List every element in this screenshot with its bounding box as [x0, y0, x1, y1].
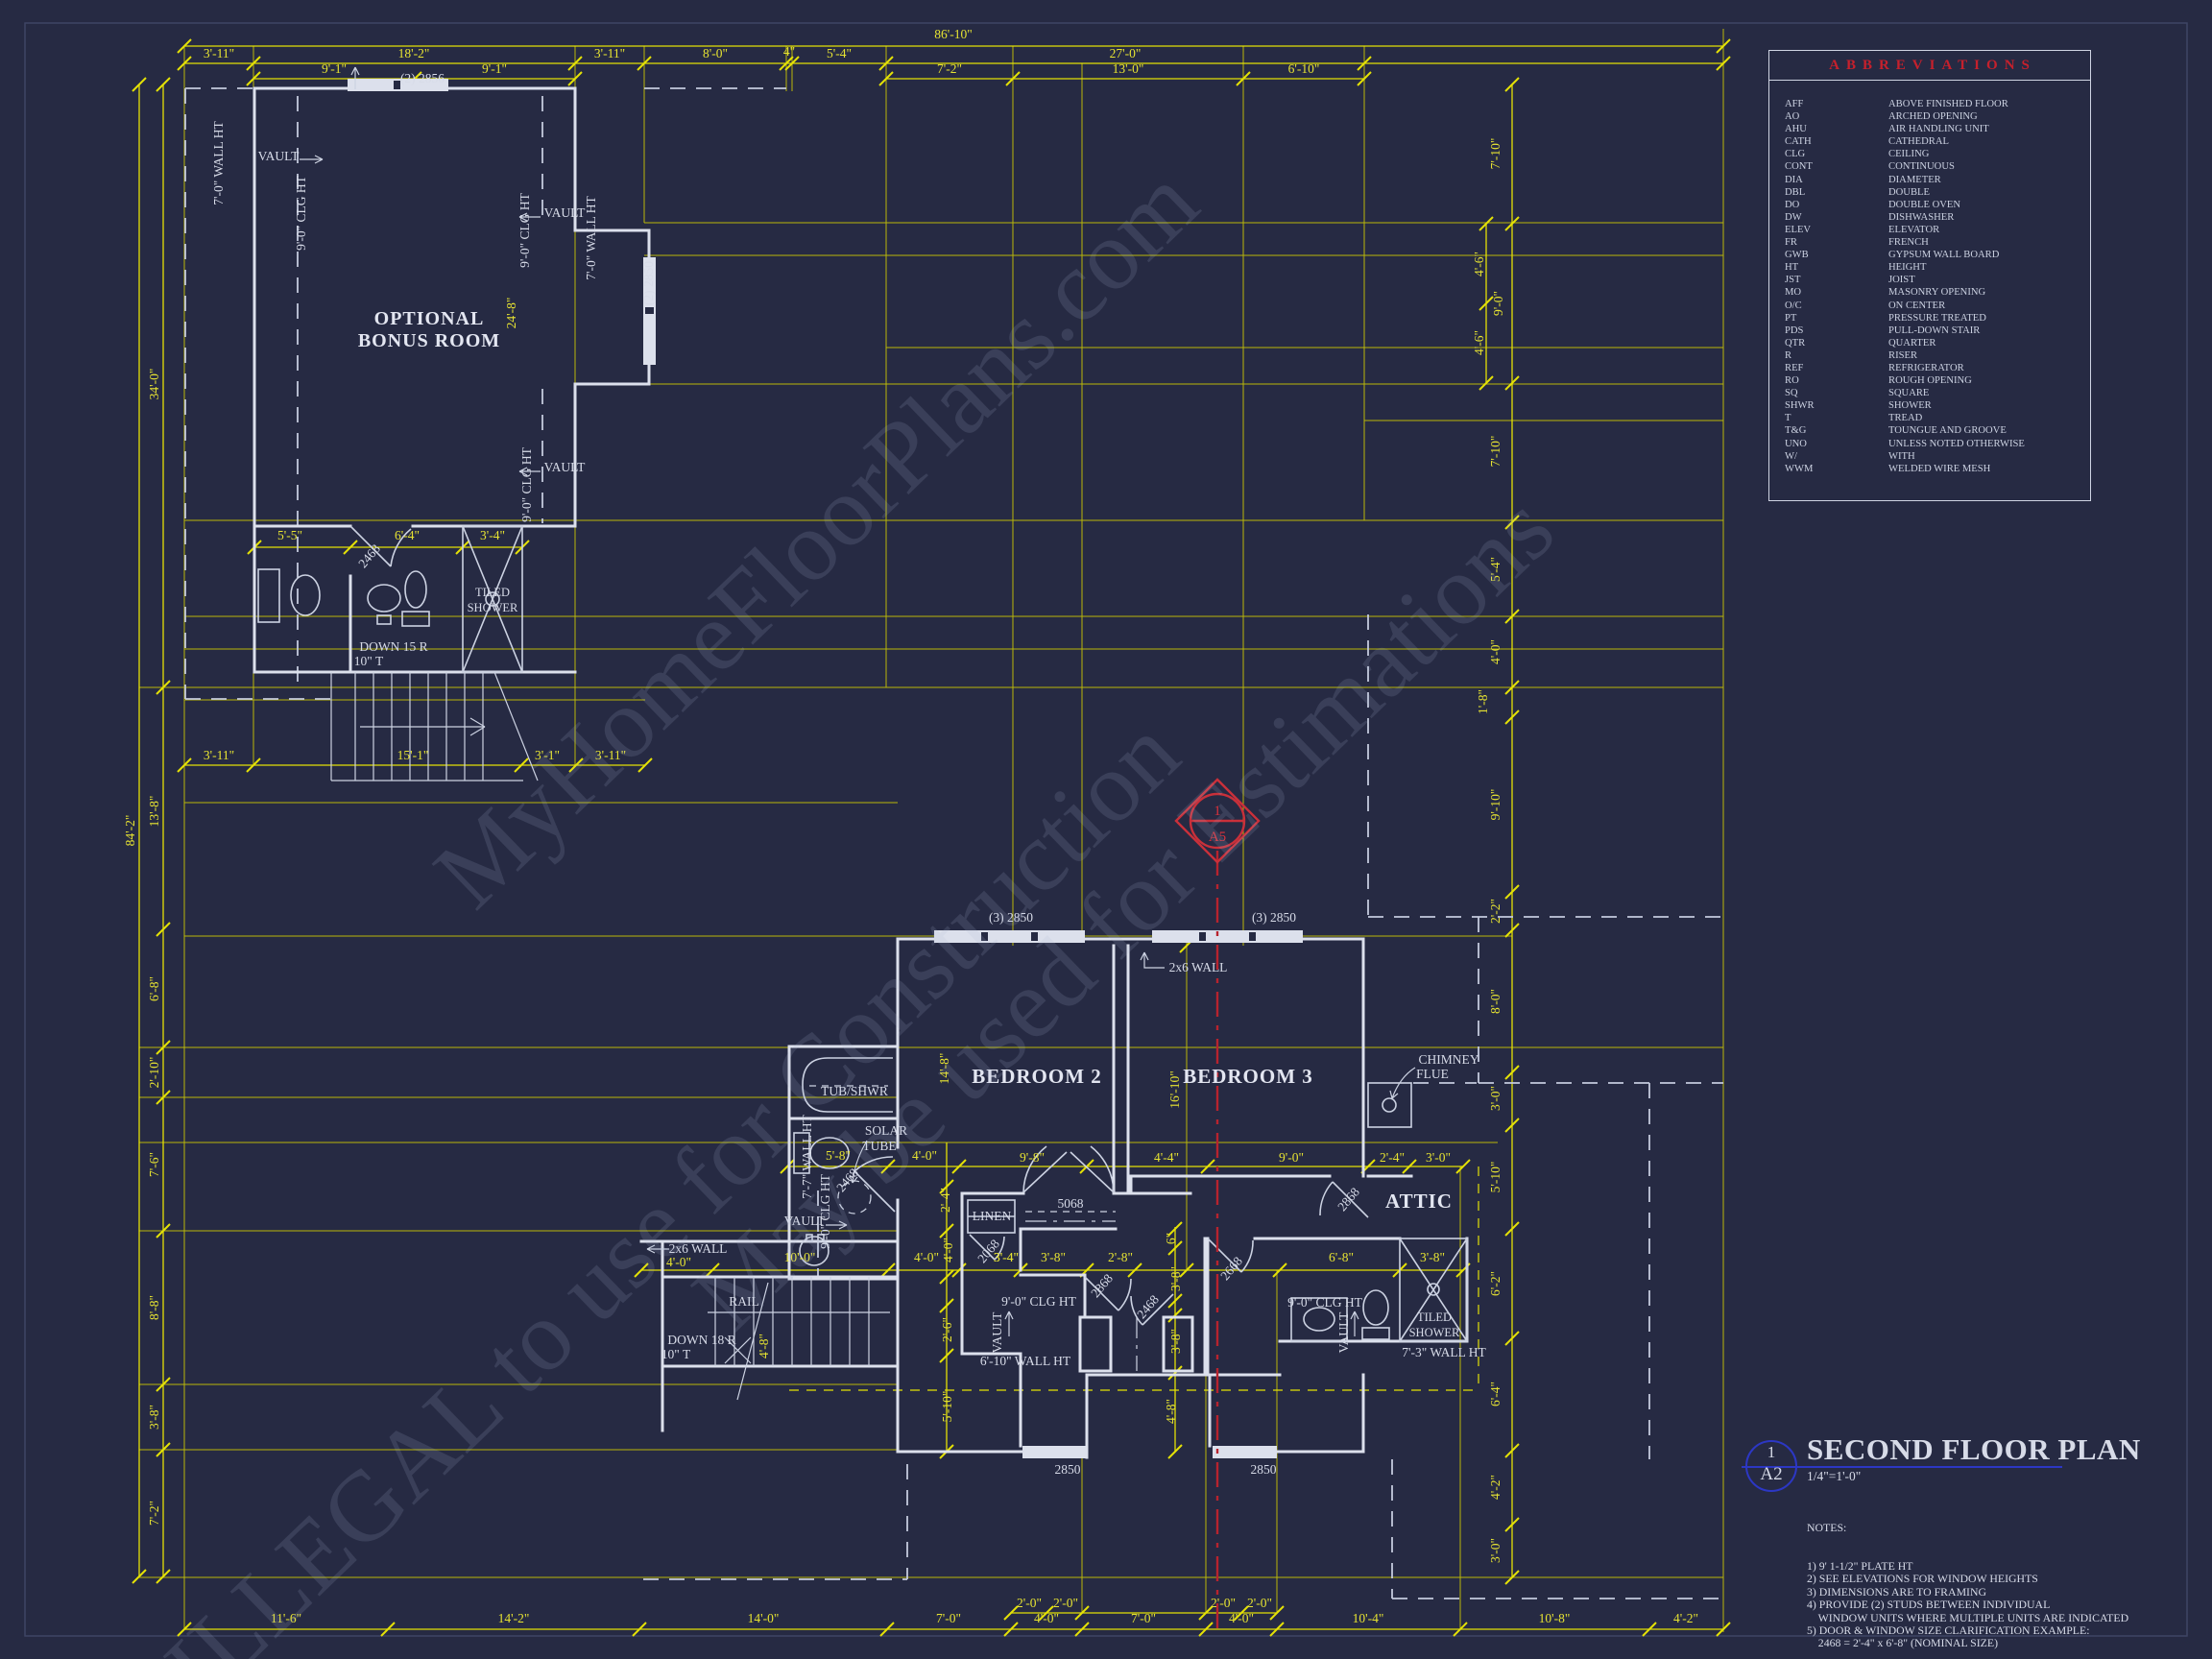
leaders-layer	[300, 67, 1415, 1336]
dim-label: 4'-4"	[1154, 1150, 1179, 1165]
abbreviation-code: CONT	[1785, 160, 1888, 173]
dim-label: 3'-11"	[204, 748, 234, 762]
abbreviation-meaning: PRESSURE TREATED	[1888, 312, 1986, 325]
dim-label: 4'-0"	[1229, 1611, 1254, 1625]
dim-label: 9'-1"	[322, 61, 347, 76]
abbreviation-row: DIADIAMETER	[1785, 174, 2090, 186]
dim-label: 5068	[1058, 1196, 1084, 1211]
dim-label: SHOWER	[1409, 1326, 1460, 1339]
abbreviation-code: CATH	[1785, 135, 1888, 148]
abbreviation-meaning: RISER	[1888, 349, 1917, 362]
abbreviation-row: WWMWELDED WIRE MESH	[1785, 463, 2090, 475]
abbreviation-row: AOARCHED OPENING	[1785, 110, 2090, 123]
dim-label: 10'-0"	[784, 1250, 816, 1264]
dim-label: 9'-0" CLG HT	[517, 192, 532, 267]
abbreviation-meaning: QUARTER	[1888, 337, 1935, 349]
dim-label: 3'-11"	[595, 748, 626, 762]
abbreviation-row: CONTCONTINUOUS	[1785, 160, 2090, 173]
room-label: OPTIONAL	[374, 308, 485, 329]
room-label: ATTIC	[1385, 1190, 1453, 1213]
abbreviation-meaning: ABOVE FINISHED FLOOR	[1888, 98, 2008, 110]
plan-title: SECOND FLOOR PLAN	[1807, 1434, 2197, 1465]
dim-label: 16'-10"	[1167, 1070, 1182, 1108]
abbreviation-row: ELEVELEVATOR	[1785, 224, 2090, 236]
dim-label: VAULT	[784, 1214, 827, 1228]
dim-label: 7'-3" WALL HT	[1402, 1345, 1486, 1359]
abbreviation-row: ROROUGH OPENING	[1785, 374, 2090, 387]
dim-label: RAIL	[729, 1294, 759, 1309]
abbreviation-code: DIA	[1785, 174, 1888, 186]
dim-label: 6"	[1164, 1233, 1178, 1244]
dim-label: 7'-0"	[936, 1611, 961, 1625]
dim-label: 2850	[1251, 1462, 1277, 1477]
abbreviation-code: CLG	[1785, 148, 1888, 160]
dim-label: 9'-1"	[482, 61, 507, 76]
dim-label: 3'-11"	[594, 46, 625, 60]
dim-label: 2x6 WALL	[1169, 960, 1228, 974]
abbreviation-code: RO	[1785, 374, 1888, 387]
dim-label: 4'-0"	[666, 1255, 691, 1269]
dim-label: 2'-0"	[1053, 1596, 1078, 1610]
dim-label: 7'-10"	[1488, 436, 1503, 468]
plan-scale: 1/4"=1'-0"	[1807, 1469, 2197, 1484]
dim-label: 5'-8"	[826, 1148, 851, 1163]
abbreviation-row: SQSQUARE	[1785, 387, 2090, 399]
abbreviation-code: AO	[1785, 110, 1888, 123]
dim-label: 9'-0" CLG HT	[1287, 1295, 1362, 1310]
abbreviation-meaning: WELDED WIRE MESH	[1888, 463, 1990, 475]
abbreviation-code: JST	[1785, 274, 1888, 286]
dim-label: 14'-2"	[498, 1611, 530, 1625]
notes-list: 1) 9' 1-1/2" PLATE HT2) SEE ELEVATIONS F…	[1807, 1560, 2197, 1650]
dim-label: 34'-0"	[147, 369, 161, 400]
dim-label: 2468	[1134, 1292, 1162, 1322]
dim-label: 10'-8"	[1539, 1611, 1571, 1625]
section-cut-group: 1 A5	[1176, 780, 1259, 1637]
dim-label: 4'-6"	[1472, 330, 1486, 355]
room-label: BEDROOM 3	[1183, 1065, 1313, 1088]
abbreviation-row: DBLDOUBLE	[1785, 186, 2090, 199]
dim-label: 3'-8"	[1168, 1329, 1183, 1354]
dim-label: 6'-8"	[147, 976, 161, 1001]
dim-label: 2'-4"	[938, 1188, 952, 1213]
abbreviation-code: UNO	[1785, 438, 1888, 450]
abbreviation-code: REF	[1785, 362, 1888, 374]
abbreviation-code: O/C	[1785, 300, 1888, 312]
abbreviation-code: T	[1785, 412, 1888, 424]
abbreviation-meaning: REFRIGERATOR	[1888, 362, 1964, 374]
dim-label: 7'-10"	[1488, 138, 1503, 170]
dim-label: 2850	[1055, 1462, 1081, 1477]
dim-label: 4'-2"	[1488, 1475, 1503, 1500]
abbreviation-meaning: CATHEDRAL	[1888, 135, 1949, 148]
dim-label: 5'-10"	[1488, 1162, 1503, 1193]
abbreviation-meaning: WITH	[1888, 450, 1915, 463]
abbreviation-meaning: DISHWASHER	[1888, 211, 1954, 224]
abbreviation-row: AFFABOVE FINISHED FLOOR	[1785, 98, 2090, 110]
windows-layer	[348, 79, 1303, 1458]
dim-label: 3'-8"	[147, 1405, 161, 1430]
abbreviation-row: SHWRSHOWER	[1785, 399, 2090, 412]
abbreviation-meaning: PULL-DOWN STAIR	[1888, 325, 1980, 337]
abbreviations-title: ABBREVIATIONS	[1769, 51, 2090, 81]
dim-label: 4'-0"	[912, 1148, 937, 1163]
note-line: 5) DOOR & WINDOW SIZE CLARIFICATION EXAM…	[1807, 1624, 2197, 1637]
dim-label: 27'-0"	[1110, 46, 1142, 60]
doors-layer	[350, 526, 1368, 1325]
dim-label: TUB/SHWR	[821, 1084, 888, 1098]
dim-label: 3'-11"	[204, 46, 234, 60]
abbreviation-meaning: CONTINUOUS	[1888, 160, 1955, 173]
dim-label: 10" T	[354, 654, 384, 668]
dim-label: 3'-4"	[480, 528, 505, 542]
dim-label: 2668	[1217, 1254, 1245, 1284]
dim-label: 2468	[355, 541, 383, 571]
sheet-number: A2	[1747, 1463, 1795, 1486]
abbreviation-meaning: UNLESS NOTED OTHERWISE	[1888, 438, 2025, 450]
abbreviation-code: R	[1785, 349, 1888, 362]
dim-label: 3'-1"	[535, 748, 560, 762]
dim-label: 9'-0"	[1279, 1150, 1304, 1165]
dim-label: 4'-8"	[1164, 1399, 1178, 1424]
dim-label: VAULT	[544, 205, 587, 220]
dim-label: 9'-0" CLG HT	[519, 446, 534, 521]
dim-label: 4"	[783, 44, 795, 59]
abbreviation-code: ELEV	[1785, 224, 1888, 236]
dim-label: TUBE	[862, 1139, 896, 1153]
dim-label: 6'-10"	[1288, 61, 1320, 76]
dim-label: 2'-2"	[1488, 899, 1503, 924]
plan-notes: NOTES: 1) 9' 1-1/2" PLATE HT2) SEE ELEVA…	[1807, 1496, 2197, 1659]
abbreviation-row: FRFRENCH	[1785, 236, 2090, 249]
dim-label: 8'-0"	[703, 46, 728, 60]
note-line: 1) 9' 1-1/2" PLATE HT	[1807, 1560, 2197, 1573]
section-marker-detail: 1	[1214, 804, 1221, 819]
dim-label: 2868	[1088, 1271, 1116, 1301]
abbreviation-row: UNOUNLESS NOTED OTHERWISE	[1785, 438, 2090, 450]
dim-label: 1'-8"	[1476, 689, 1490, 714]
dim-label: 4'-2"	[1673, 1611, 1698, 1625]
dim-label: 10'-4"	[1353, 1611, 1384, 1625]
dim-label: 9'-0" CLG HT	[818, 1173, 832, 1248]
dim-label: TILED	[475, 586, 510, 599]
dim-label: 7'-2"	[147, 1501, 161, 1526]
note-line: 2468 = 2'-4" x 6'-8" (NOMINAL SIZE)	[1807, 1637, 2197, 1649]
abbreviation-meaning: ELEVATOR	[1888, 224, 1939, 236]
abbreviation-meaning: SHOWER	[1888, 399, 1932, 412]
abbreviation-code: SQ	[1785, 387, 1888, 399]
abbreviation-row: TTREAD	[1785, 412, 2090, 424]
section-marker-sheet: A5	[1209, 829, 1226, 845]
abbreviation-row: DWDISHWASHER	[1785, 211, 2090, 224]
dim-label: 6'-4"	[1488, 1382, 1503, 1407]
dim-label: (2) 2850	[641, 261, 656, 305]
dim-label: 15'-1"	[397, 748, 429, 762]
dim-label: 9'-8"	[1020, 1150, 1045, 1165]
abbreviation-meaning: TOUNGUE AND GROOVE	[1888, 424, 2007, 437]
dim-label: 18'-2"	[398, 46, 430, 60]
dim-label: 2'-0"	[1211, 1596, 1236, 1610]
dim-label: 2'-4"	[1380, 1150, 1405, 1165]
dim-label: VAULT	[990, 1311, 1004, 1354]
dim-label: 7'-0" WALL HT	[584, 196, 598, 280]
walls-layer	[254, 88, 1467, 1457]
dim-label: DOWN 15 R	[359, 639, 427, 654]
dim-label: SHOWER	[468, 601, 518, 614]
abbreviation-row: GWBGYPSUM WALL BOARD	[1785, 249, 2090, 261]
dim-label: 2'-6"	[940, 1317, 954, 1342]
dim-label: 6'-4"	[395, 528, 420, 542]
dim-label: 2'-0"	[1247, 1596, 1272, 1610]
dim-label: 4'-0"	[1034, 1611, 1059, 1625]
dim-label: 7'-0"	[1131, 1611, 1156, 1625]
room-label: BONUS ROOM	[358, 330, 500, 351]
dim-label: 5'-4"	[827, 46, 852, 60]
abbreviation-code: WWM	[1785, 463, 1888, 475]
dim-label: 86'-10"	[934, 27, 972, 41]
dim-label: 7'-2"	[937, 61, 962, 76]
dim-label: (3) 2850	[1252, 910, 1296, 925]
abbreviation-row: DODOUBLE OVEN	[1785, 199, 2090, 211]
dim-label: (3) 2850	[989, 910, 1033, 925]
abbreviation-row: REFREFRIGERATOR	[1785, 362, 2090, 374]
abbreviation-row: PTPRESSURE TREATED	[1785, 312, 2090, 325]
dim-label: 5'-4"	[1488, 557, 1503, 582]
dim-label: 7'-0" WALL HT	[211, 121, 226, 205]
dim-label: 13'-8"	[147, 796, 161, 828]
dim-label: DOWN 18 R	[667, 1333, 735, 1347]
dim-label: 9'-0"	[1491, 291, 1505, 316]
dim-label: 5'-5"	[277, 528, 302, 542]
dim-label: 14'-8"	[937, 1053, 951, 1085]
dim-label: 24'-8"	[504, 298, 518, 329]
abbreviation-meaning: DOUBLE	[1888, 186, 1930, 199]
abbreviation-code: MO	[1785, 286, 1888, 299]
abbreviation-code: QTR	[1785, 337, 1888, 349]
note-line: WINDOW UNITS WHERE MULTIPLE UNITS ARE IN…	[1807, 1612, 2197, 1624]
dim-label: 6'-8"	[1329, 1250, 1354, 1264]
dim-label: VAULT	[544, 460, 587, 474]
note-line: 3) DIMENSIONS ARE TO FRAMING	[1807, 1586, 2197, 1599]
dim-label: VAULT	[258, 149, 301, 163]
dim-label: 4'-0"	[941, 1238, 955, 1262]
notes-heading: NOTES:	[1807, 1522, 2197, 1534]
dim-label: 9'-0" CLG HT	[1001, 1294, 1076, 1309]
dim-label: 84'-2"	[123, 815, 137, 847]
abbreviation-meaning: CEILING	[1888, 148, 1929, 160]
dim-label: 9'-0" CLG HT	[294, 175, 308, 250]
dim-label: 8'-0"	[1488, 989, 1503, 1014]
abbreviation-code: W/	[1785, 450, 1888, 463]
abbreviation-code: SHWR	[1785, 399, 1888, 412]
abbreviation-meaning: JOIST	[1888, 274, 1915, 286]
note-line: 2) SEE ELEVATIONS FOR WINDOW HEIGHTS	[1807, 1573, 2197, 1585]
abbreviation-row: W/WITH	[1785, 450, 2090, 463]
abbreviation-row: AHUAIR HANDLING UNIT	[1785, 123, 2090, 135]
abbreviation-code: FR	[1785, 236, 1888, 249]
abbreviation-code: HT	[1785, 261, 1888, 274]
dim-label: 13'-0"	[1113, 61, 1144, 76]
dim-label: 6'-2"	[1488, 1271, 1503, 1296]
abbreviation-code: DW	[1785, 211, 1888, 224]
abbreviation-meaning: HEIGHT	[1888, 261, 1926, 274]
title-block: 1 A2 SECOND FLOOR PLAN 1/4"=1'-0" NOTES:…	[1745, 1434, 2197, 1659]
abbreviation-meaning: TREAD	[1888, 412, 1922, 424]
abbreviation-meaning: ON CENTER	[1888, 300, 1945, 312]
dimension-lines-layer	[139, 46, 1723, 1629]
dim-label: FLUE	[1416, 1067, 1449, 1081]
abbreviation-code: DBL	[1785, 186, 1888, 199]
abbreviations-list: AFFABOVE FINISHED FLOORAOARCHED OPENINGA…	[1769, 81, 2090, 475]
dim-label: 3'-8"	[1168, 1266, 1183, 1291]
stairs-layer	[331, 672, 890, 1400]
dim-label: (2) 2856	[400, 71, 445, 85]
abbreviation-code: GWB	[1785, 249, 1888, 261]
abbreviation-row: CATHCATHEDRAL	[1785, 135, 2090, 148]
room-label: BEDROOM 2	[972, 1065, 1102, 1088]
dim-label: 7'-6"	[147, 1152, 161, 1177]
abbreviation-row: O/CON CENTER	[1785, 300, 2090, 312]
dim-label: 7'-7" WALL HT	[800, 1115, 814, 1199]
abbreviation-meaning: FRENCH	[1888, 236, 1929, 249]
abbreviation-code: DO	[1785, 199, 1888, 211]
abbreviation-row: CLGCEILING	[1785, 148, 2090, 160]
dim-label: 14'-0"	[748, 1611, 780, 1625]
dim-label: 4'-0"	[1488, 639, 1503, 664]
dim-label: 3'-0"	[1426, 1150, 1451, 1165]
dim-label: 8'-8"	[147, 1295, 161, 1320]
dim-label: LINEN	[973, 1209, 1012, 1223]
abbreviation-meaning: ROUGH OPENING	[1888, 374, 1972, 387]
abbreviation-meaning: DIAMETER	[1888, 174, 1941, 186]
dim-label: 2'-8"	[1108, 1250, 1133, 1264]
dim-label: 2'-0"	[1017, 1596, 1042, 1610]
abbreviation-row: HTHEIGHT	[1785, 261, 2090, 274]
abbreviation-code: PT	[1785, 312, 1888, 325]
abbreviation-meaning: ARCHED OPENING	[1888, 110, 1978, 123]
dim-label: SOLAR	[865, 1123, 907, 1138]
abbreviation-row: T&GTOUNGUE AND GROOVE	[1785, 424, 2090, 437]
dim-label: CHIMNEY	[1419, 1052, 1479, 1067]
abbreviation-row: JSTJOIST	[1785, 274, 2090, 286]
dim-label: 11'-6"	[271, 1611, 301, 1625]
dim-label: 6'-10" WALL HT	[980, 1354, 1071, 1368]
section-marker-a5: 1 A5	[1176, 780, 1259, 862]
plan-labels-layer: 86'-10"3'-11"18'-2"3'-11"8'-0"4"5'-4"27'…	[123, 27, 1698, 1625]
dim-label: TILED	[1417, 1310, 1452, 1324]
detail-reference-bubble: 1 A2	[1745, 1440, 1797, 1492]
dim-label: 3'-0"	[1488, 1538, 1503, 1563]
abbreviation-row: PDSPULL-DOWN STAIR	[1785, 325, 2090, 337]
dim-label: 2'-10"	[147, 1057, 161, 1089]
abbreviation-meaning: GYPSUM WALL BOARD	[1888, 249, 1999, 261]
dim-label: 3'-4"	[994, 1250, 1019, 1264]
abbreviation-row: QTRQUARTER	[1785, 337, 2090, 349]
abbreviation-row: MOMASONRY OPENING	[1785, 286, 2090, 299]
dim-label: 4'-6"	[1472, 252, 1486, 276]
abbreviation-code: AFF	[1785, 98, 1888, 110]
abbreviation-meaning: DOUBLE OVEN	[1888, 199, 1960, 211]
abbreviation-code: AHU	[1785, 123, 1888, 135]
dim-label: 2x6 WALL	[669, 1241, 728, 1256]
abbreviation-row: RRISER	[1785, 349, 2090, 362]
abbreviation-meaning: SQUARE	[1888, 387, 1929, 399]
detail-number: 1	[1747, 1442, 1795, 1463]
note-line: 4) PROVIDE (2) STUDS BETWEEN INDIVIDUAL	[1807, 1599, 2197, 1611]
blueprint-sheet: MyHomeFloorPlans.com May be used for Est…	[0, 0, 2212, 1659]
abbreviation-meaning: MASONRY OPENING	[1888, 286, 1985, 299]
abbreviation-code: PDS	[1785, 325, 1888, 337]
dim-label: 5'-10"	[940, 1391, 954, 1423]
abbreviation-meaning: AIR HANDLING UNIT	[1888, 123, 1989, 135]
dim-label: 4'-8"	[757, 1334, 771, 1358]
dim-label: 10" T	[661, 1347, 691, 1361]
dim-label: 3'-0"	[1488, 1086, 1503, 1111]
dim-label: 3'-8"	[1420, 1250, 1445, 1264]
abbreviation-code: T&G	[1785, 424, 1888, 437]
dim-label: 9'-10"	[1488, 789, 1503, 821]
abbreviations-panel: ABBREVIATIONS AFFABOVE FINISHED FLOORAOA…	[1768, 50, 2091, 501]
dim-label: 4'-0"	[914, 1250, 939, 1264]
dim-label: 3'-8"	[1041, 1250, 1066, 1264]
dim-label: VAULT	[1336, 1311, 1351, 1354]
